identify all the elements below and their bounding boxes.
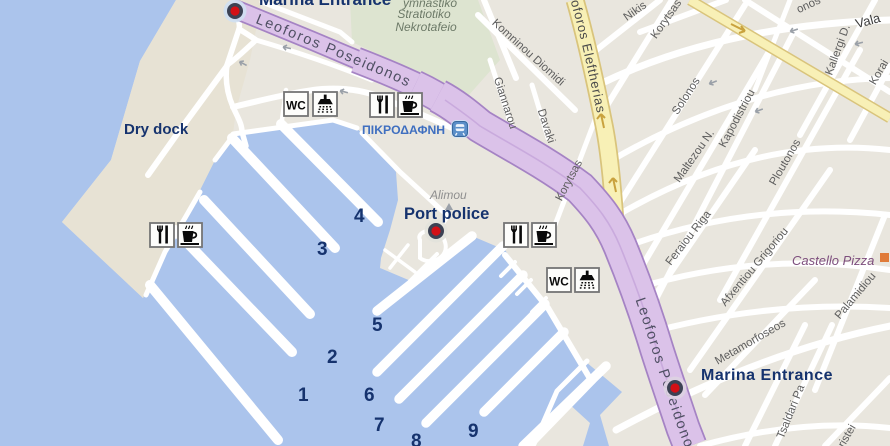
svg-text:7: 7 — [374, 415, 385, 436]
svg-text:Marina Entrance: Marina Entrance — [259, 0, 391, 9]
svg-text:Stratiotiko: Stratiotiko — [397, 7, 451, 21]
svg-text:1: 1 — [298, 385, 309, 406]
svg-text:8: 8 — [411, 431, 422, 446]
svg-text:Marina Entrance: Marina Entrance — [701, 367, 833, 384]
svg-text:ΠΙΚΡΟΔΑΦΝΗ: ΠΙΚΡΟΔΑΦΝΗ — [362, 123, 445, 137]
svg-text:4: 4 — [354, 206, 365, 227]
svg-text:3: 3 — [317, 239, 328, 260]
svg-text:Alimou: Alimou — [429, 188, 467, 202]
svg-text:Castello Pizza: Castello Pizza — [792, 253, 874, 268]
svg-text:6: 6 — [364, 385, 375, 406]
svg-text:9: 9 — [468, 421, 479, 442]
svg-text:Port police: Port police — [404, 205, 489, 223]
svg-text:5: 5 — [372, 315, 383, 336]
svg-text:Dry dock: Dry dock — [124, 121, 189, 138]
svg-text:Nekrotafeio: Nekrotafeio — [395, 20, 457, 34]
svg-text:2: 2 — [327, 347, 338, 368]
